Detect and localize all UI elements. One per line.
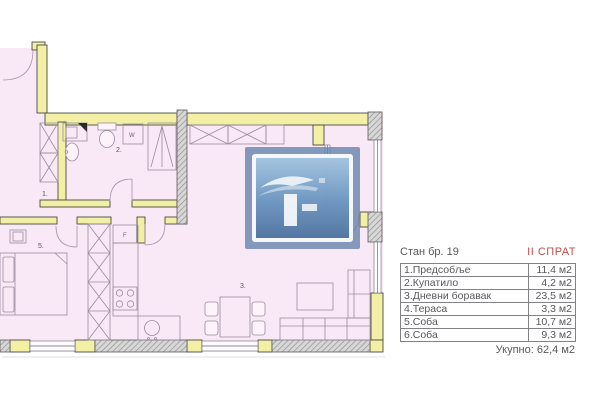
room-area: 4,2 м2	[529, 277, 576, 290]
rooms-table: 1.Предсобље 11,4 м2 2.Купатило 4,2 м2 3.…	[400, 263, 576, 342]
room-name: 2.Купатило	[401, 277, 529, 290]
watermark-logo	[245, 147, 360, 249]
room-name: 3.Дневни боравак	[401, 290, 529, 303]
chair	[205, 321, 218, 335]
bath-sink	[65, 143, 78, 161]
label-bathroom: 2.	[116, 147, 122, 154]
logo-panel	[256, 158, 349, 238]
table-row: 1.Предсобље 11,4 м2	[401, 264, 576, 277]
room-name: 4.Тераса	[401, 303, 529, 316]
table-row: 3.Дневни боравак 23,5 м2	[401, 290, 576, 303]
apartment-title: Стан бр. 19	[400, 246, 459, 258]
logo-art-icon	[256, 158, 349, 238]
window-right-lower	[374, 242, 381, 293]
washer-label: W	[129, 133, 135, 139]
table-row: 4.Тераса 3,3 м2	[401, 303, 576, 316]
toilet	[98, 123, 116, 148]
chair	[205, 302, 218, 316]
label-bedroom: 5.	[38, 243, 44, 250]
total-area: Укупно: 62,4 м2	[400, 344, 576, 356]
room-area: 11,4 м2	[529, 264, 576, 277]
legend-header: Стан бр. 19 II СПРАТ	[400, 246, 576, 263]
room-area: 23,5 м2	[529, 290, 576, 303]
window-bottom-mid	[202, 341, 258, 351]
room-name: 1.Предсобље	[401, 264, 529, 277]
chair	[252, 321, 265, 335]
label-hall: 1.	[42, 191, 48, 198]
floor-label: II СПРАТ	[527, 246, 576, 258]
room-area: 9,3 м2	[529, 329, 576, 342]
label-living: 3.	[240, 283, 246, 290]
room-area: 10,7 м2	[529, 316, 576, 329]
room-area: 3,3 м2	[529, 303, 576, 316]
table-row: 6.Соба 9,3 м2	[401, 329, 576, 342]
room-name: 5.Соба	[401, 316, 529, 329]
table-row: 5.Соба 10,7 м2	[401, 316, 576, 329]
fridge-label: F	[123, 233, 127, 239]
legend: Стан бр. 19 II СПРАТ 1.Предсобље 11,4 м2…	[400, 246, 576, 356]
window-right-upper	[374, 140, 381, 212]
chair	[252, 302, 265, 316]
window-bottom-left	[30, 341, 75, 351]
room-name: 6.Соба	[401, 329, 529, 342]
table-row: 2.Купатило 4,2 м2	[401, 277, 576, 290]
